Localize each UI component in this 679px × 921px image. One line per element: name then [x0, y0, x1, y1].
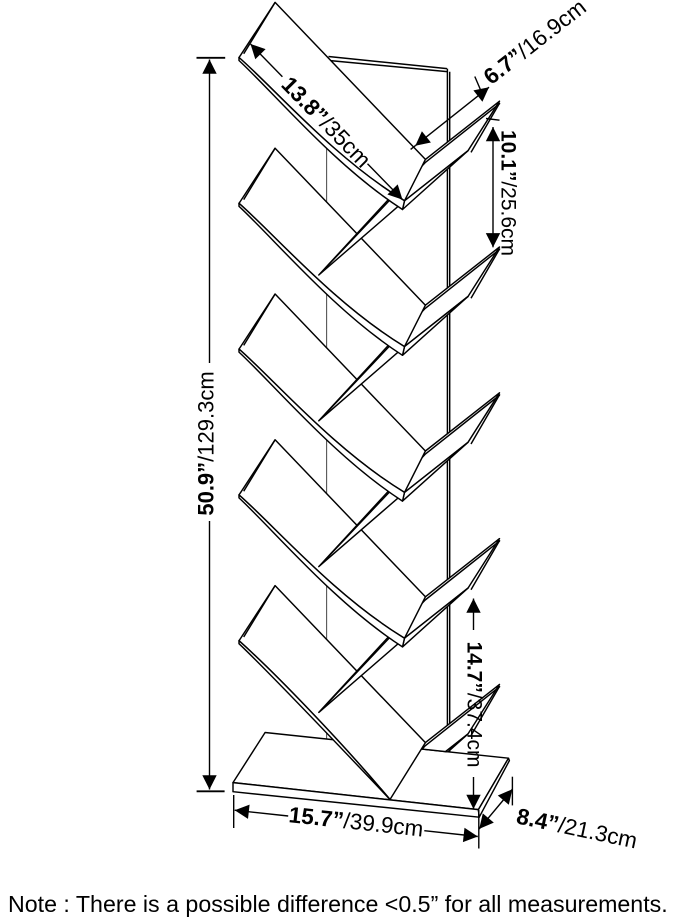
svg-text:Note : There is a possible dif: Note : There is a possible difference <0…	[8, 891, 668, 917]
svg-text:14.7”/37.4cm: 14.7”/37.4cm	[463, 641, 486, 767]
svg-text:10.1”/25.6cm: 10.1”/25.6cm	[497, 130, 520, 256]
svg-text:50.9”/129.3cm: 50.9”/129.3cm	[193, 371, 218, 515]
